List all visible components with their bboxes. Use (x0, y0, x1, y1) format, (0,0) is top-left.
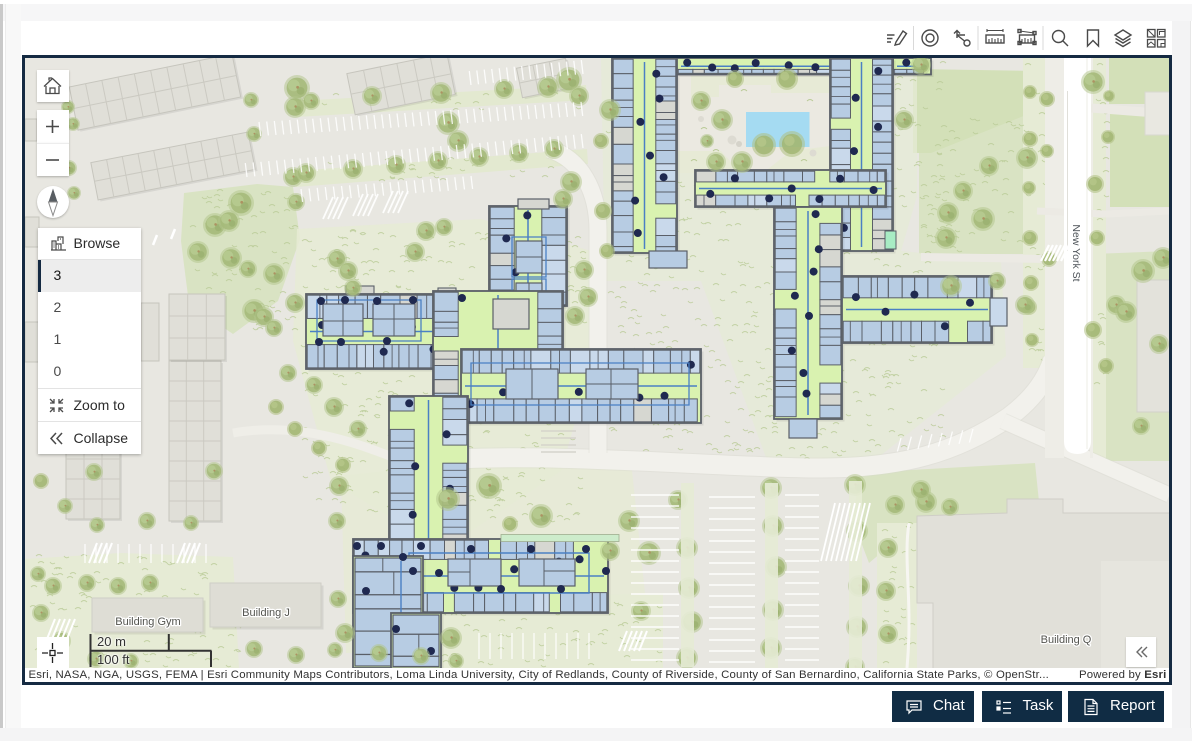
svg-text:Building Q: Building Q (1040, 634, 1091, 646)
svg-text:New York St: New York St (1070, 224, 1082, 281)
svg-text:Building J: Building J (242, 607, 290, 619)
svg-text:Building Gym: Building Gym (115, 616, 180, 628)
